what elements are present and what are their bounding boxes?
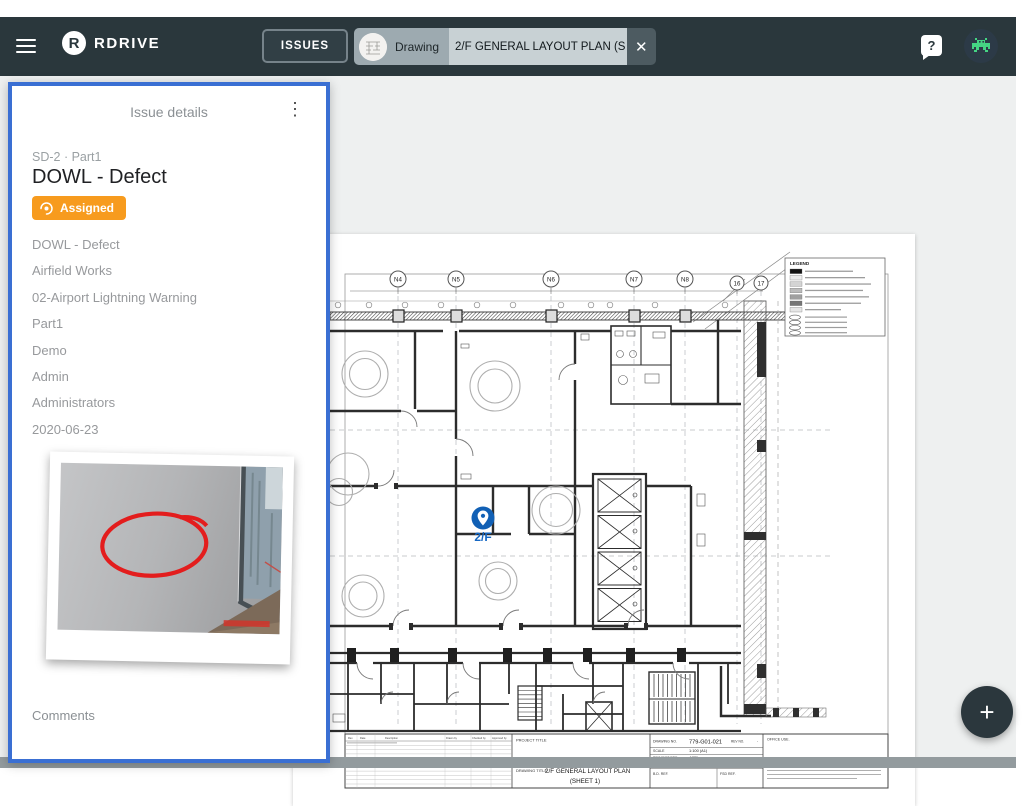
floor-plan-svg: N4 N5 N6 N7 N8 16 17 [293, 234, 915, 806]
brand-r-icon: R [62, 31, 86, 55]
rev-header: Rev [348, 736, 353, 740]
add-button[interactable]: + [961, 686, 1013, 738]
issue-details-panel: Issue details ⋮ SD-2 · Part1 DOWL - Defe… [8, 82, 330, 763]
rev-header: Date [360, 736, 366, 740]
drawing-no-label: DRAWING NO. [653, 740, 677, 744]
brand-logo: R RDRIVE [62, 31, 160, 55]
panel-title: Issue details [12, 104, 326, 120]
top-bar: R RDRIVE ISSUES Drawing 2/F GENERAL LAYO… [0, 17, 1016, 76]
brand-name: RDRIVE [94, 35, 160, 52]
grid-label: N8 [681, 277, 689, 284]
map-pin-icon [470, 505, 496, 531]
project-title-label: PROJECT TITLE [516, 738, 547, 743]
issue-reference: SD-2 · Part1 [32, 150, 101, 164]
tab-type-label: Drawing [395, 40, 439, 54]
status-icon [39, 201, 54, 216]
drawing-no-value: 779-G01-021 [689, 740, 722, 746]
fsd-ref-label: FSD REF. [720, 772, 736, 776]
drawing-title-label: DRAWING TITLE [516, 768, 547, 773]
comments-section-label: Comments [32, 708, 95, 723]
sheet-label: (SHEET 1) [570, 778, 600, 785]
legend-box: LEGEND [785, 258, 885, 336]
issue-title: DOWL - Defect [32, 166, 167, 189]
rev-header: Checked by [472, 736, 486, 740]
field-type: DOWL - Defect [32, 232, 197, 258]
drawing-page: N4 N5 N6 N7 N8 16 17 [293, 234, 915, 806]
bd-ref-label: B.D. REF. [653, 772, 668, 776]
scale-label: SCALE [653, 749, 665, 753]
help-icon[interactable]: ? [921, 35, 942, 56]
user-avatar[interactable] [964, 29, 998, 63]
issue-photo-thumbnail[interactable] [46, 451, 294, 664]
status-label: Assigned [60, 201, 114, 215]
grid-label: N4 [394, 277, 402, 284]
drawing-title-value: 2/F GENERAL LAYOUT PLAN [545, 768, 631, 775]
issue-pin[interactable] [470, 505, 496, 531]
drawing-tab-left: Drawing [354, 28, 449, 65]
rev-header: Description [385, 736, 399, 740]
app-window: R RDRIVE ISSUES Drawing 2/F GENERAL LAYO… [0, 0, 1024, 768]
status-badge: Assigned [32, 196, 126, 220]
field-date: 2020-06-23 [32, 417, 197, 443]
grid-label: 16 [734, 281, 741, 288]
pin-floor-label: 2/F [465, 530, 501, 544]
rev-header: Drawn by [446, 736, 458, 740]
issue-fields: DOWL - Defect Airfield Works 02-Airport … [32, 232, 197, 443]
field-discipline: Airfield Works [32, 258, 197, 284]
drawing-tab[interactable]: Drawing 2/F GENERAL LAYOUT PLAN (S ✕ [354, 28, 656, 65]
grid-label: N7 [630, 277, 638, 284]
rev-no-label: REV NO. [731, 740, 744, 744]
rev-header: Approved by [492, 736, 507, 740]
tab-close-icon[interactable]: ✕ [627, 28, 656, 65]
field-group: Administrators [32, 390, 197, 416]
issues-button[interactable]: ISSUES [262, 29, 348, 63]
field-project: Demo [32, 338, 197, 364]
hamburger-menu-icon[interactable] [16, 39, 36, 55]
invader-avatar-icon [970, 35, 992, 57]
issue-photo [57, 463, 282, 635]
scale-value: 1:100 (A1) [689, 748, 708, 753]
grid-label: 17 [758, 281, 765, 288]
office-use-label: OFFICE USE. [767, 738, 790, 742]
kebab-menu-icon[interactable]: ⋮ [286, 100, 304, 118]
legend-title: LEGEND [790, 261, 810, 266]
tab-title: 2/F GENERAL LAYOUT PLAN (S [449, 28, 627, 65]
grid-label: N5 [452, 277, 460, 284]
field-category: 02-Airport Lightning Warning [32, 285, 197, 311]
field-part: Part1 [32, 311, 197, 337]
field-user: Admin [32, 364, 197, 390]
grid-label: N6 [547, 277, 555, 284]
drawing-thumbnail-icon [359, 33, 387, 61]
